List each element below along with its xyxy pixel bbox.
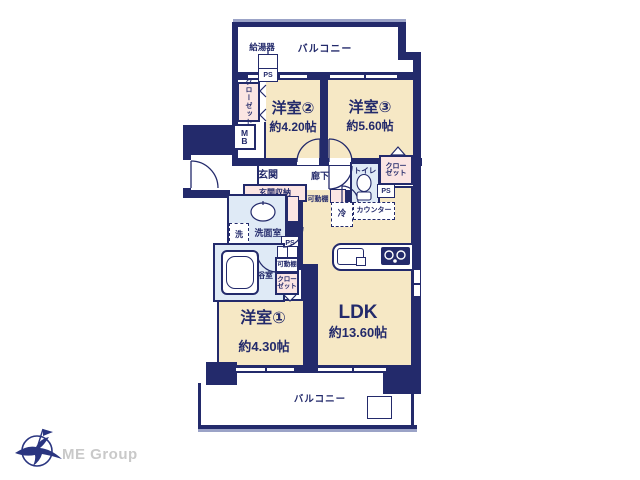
bedroom1-ldk-divider-wall — [303, 264, 318, 368]
bedroom1-window — [236, 367, 294, 372]
ps-right-label: PS — [377, 186, 395, 196]
closet-bath-label: クロー ゼット — [276, 274, 298, 293]
hallway-label: 廊下 — [306, 170, 334, 182]
bedroom2-name: 洋室② — [263, 99, 323, 117]
movable-shelf-bath-label: 可動棚 — [276, 261, 298, 270]
movable-shelf-hall-box — [330, 189, 346, 203]
closet-right-line1: クロー — [386, 163, 407, 170]
entrance-door-arc — [191, 161, 218, 188]
me-group-logo-icon — [12, 420, 66, 474]
counter-label: カウンター — [353, 205, 395, 216]
bedroom2-door-opening — [297, 158, 319, 165]
water-heater-box — [258, 54, 278, 69]
entrance-label: 玄関 — [250, 169, 286, 182]
closet-right-label: クロー ゼット — [381, 158, 411, 182]
entrance-step-wall — [183, 190, 230, 198]
bedroom1-area: 約4.30帖 — [233, 339, 295, 353]
balcony-top-label: バルコニー — [280, 43, 370, 57]
bedroom1-name: 洋室① — [233, 310, 293, 328]
closet-left-line2: ゼット — [245, 102, 252, 126]
washer-label: 洗 — [229, 229, 249, 240]
right-wall-lower — [413, 294, 421, 374]
meter-box-label: M B — [233, 126, 256, 148]
bathroom-label: 浴室 — [254, 270, 276, 281]
balcony-bottom-railing — [198, 429, 417, 432]
me-group-logo-text: ME Group — [62, 445, 146, 463]
bedroom3-door-opening — [329, 158, 351, 165]
ldk-side-window — [413, 270, 421, 296]
bedroom3-area: 約5.60帖 — [340, 119, 400, 133]
closet-right-line2: ゼット — [386, 170, 407, 177]
closet-bath-line2: ゼット — [277, 284, 297, 291]
balcony-bottom-label: バルコニー — [294, 393, 346, 406]
movable-shelf-wall-strip — [287, 196, 299, 222]
bedroom3-window — [330, 74, 397, 79]
evacuation-hatch — [367, 396, 392, 419]
room-bedroom2 — [264, 78, 324, 160]
toilet-label: トイレ — [352, 166, 378, 176]
ps-top-label: PS — [258, 70, 278, 80]
movable-shelf-hall-label: 可動棚 — [304, 194, 332, 204]
bottomleft-corner-block — [206, 362, 237, 385]
bottomright-corner-block — [383, 372, 421, 394]
bedroom3-name: 洋室③ — [340, 98, 400, 116]
balcony-bottom-left-edge — [198, 383, 201, 428]
closet-left-label: クロー ゼット — [239, 84, 258, 120]
balcony-bottom-right-edge — [411, 390, 414, 427]
meter-box-line2: B — [241, 137, 247, 146]
kitchen-stove — [381, 247, 410, 265]
fridge-label: 冷 — [331, 207, 353, 219]
bedroom2-area: 約4.20帖 — [263, 120, 323, 134]
entrance-door-opening — [183, 160, 191, 188]
ldk-window — [318, 367, 386, 372]
floorplan-canvas: 玄関 廊下 玄関収納 クロー ゼット M B バルコニー 給湯器 PS トイレ … — [0, 0, 640, 480]
water-heater-label: 給湯器 — [240, 41, 284, 53]
kitchen-faucet — [356, 257, 366, 266]
bathtub-inner — [226, 256, 254, 289]
balcony-top-wall — [233, 22, 406, 27]
ldk-area: 約13.60帖 — [322, 325, 394, 339]
ldk-name: LDK — [328, 303, 388, 322]
closet-left-line1: クロー — [245, 78, 252, 102]
